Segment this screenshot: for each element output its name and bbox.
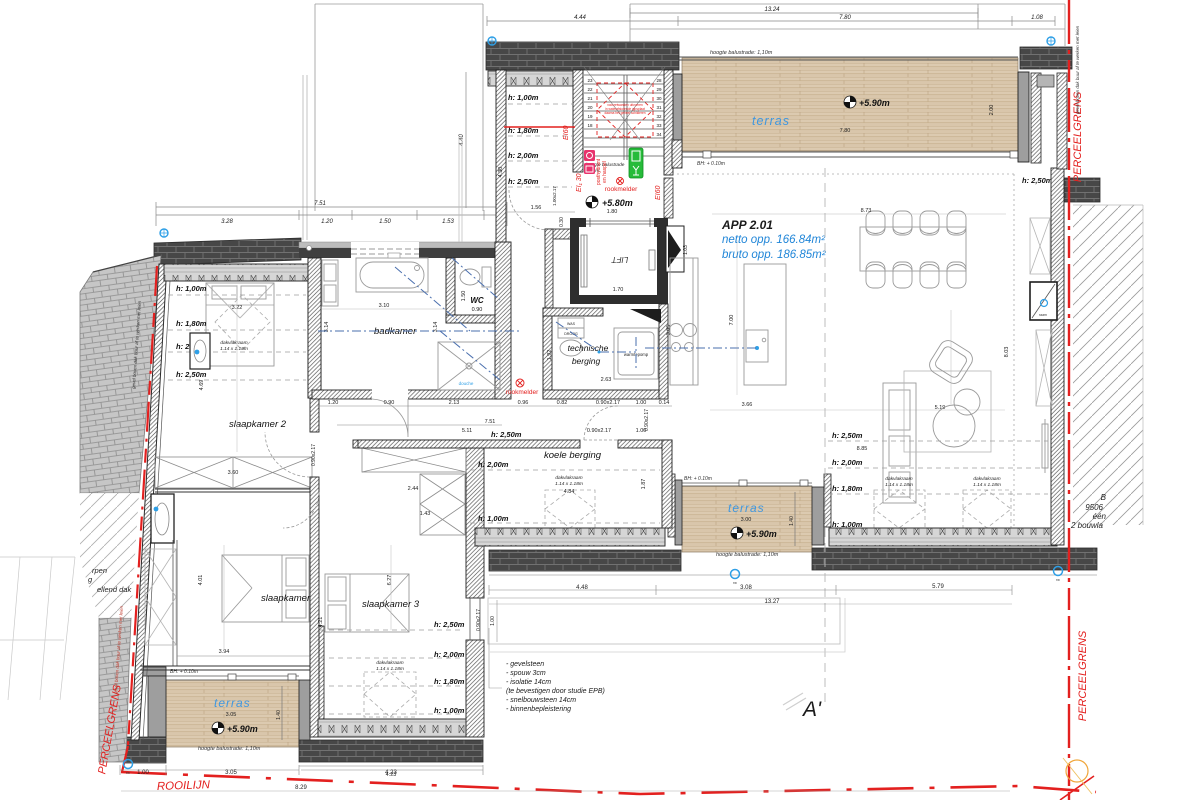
svg-text:rookmelder: rookmelder [506,389,539,396]
svg-text:3.00: 3.00 [741,517,752,523]
svg-text:dakvlakraam: dakvlakraam [220,340,247,346]
svg-text:+5.80m: +5.80m [602,198,633,208]
svg-text:h: 2,00m: h: 2,00m [832,458,863,467]
svg-text:h: 2,50m: h: 2,50m [832,431,863,440]
svg-text:0.90x2.17: 0.90x2.17 [596,400,620,406]
svg-text:1.14 x 1.18m: 1.14 x 1.18m [376,666,404,672]
svg-text:slaapkamer 2: slaapkamer 2 [229,419,287,430]
svg-text:0.90x2.17: 0.90x2.17 [476,609,482,631]
svg-text:1.14 x 1.18m: 1.14 x 1.18m [885,482,913,488]
svg-text:1.40: 1.40 [789,516,795,526]
svg-text:raam: raam [1039,313,1047,317]
svg-text:1.80: 1.80 [607,209,618,215]
svg-text:1.56: 1.56 [531,205,542,211]
svg-text:WAS: WAS [567,322,576,326]
svg-text:3.08: 3.08 [740,585,752,591]
svg-text:34: 34 [656,132,662,137]
svg-text:gevel boven dak buur af te wer: gevel boven dak buur af te werken met le… [1075,25,1080,114]
svg-text:+5.90m: +5.90m [859,98,890,108]
svg-text:4.48: 4.48 [576,585,588,591]
svg-text:terras: terras [752,114,790,128]
svg-text:33: 33 [656,123,662,128]
svg-text:30: 30 [656,96,662,101]
svg-text:3.05: 3.05 [226,712,237,718]
svg-text:6.27: 6.27 [387,575,393,586]
svg-text:0.14: 0.14 [659,400,670,406]
svg-text:h: 1,00m: h: 1,00m [176,284,207,293]
svg-text:4.34: 4.34 [564,489,575,495]
svg-text:2.44: 2.44 [408,486,419,492]
svg-text:8.03: 8.03 [1004,347,1010,358]
svg-text:h: 2,00m: h: 2,00m [478,460,509,469]
svg-text:1.03: 1.03 [683,245,689,255]
svg-text:4.01: 4.01 [198,575,204,586]
svg-text:0.90: 0.90 [384,400,395,406]
svg-text:- gevelsteen: - gevelsteen [506,661,544,668]
svg-text:rw: rw [1056,578,1060,582]
svg-text:rw: rw [126,771,130,775]
svg-text:8.85: 8.85 [857,446,868,452]
svg-text:- isolatie 14cm: - isolatie 14cm [506,679,551,686]
svg-text:EI₁ 30: EI₁ 30 [576,173,583,192]
svg-text:0.90: 0.90 [472,307,483,313]
svg-text:0.82: 0.82 [557,400,568,406]
svg-text:1.14 x 1.18m: 1.14 x 1.18m [220,346,248,352]
svg-text:BH: + 0.10m: BH: + 0.10m [684,476,712,482]
svg-text:2.00: 2.00 [989,105,995,116]
svg-text:2.13: 2.13 [449,400,460,406]
svg-text:0.30: 0.30 [559,217,565,227]
svg-text:1.00: 1.00 [137,770,149,776]
svg-text:hoogte balustrade: 1,10m: hoogte balustrade: 1,10m [716,552,779,558]
svg-text:7.51: 7.51 [314,201,326,207]
svg-text:- binnenbepleistering: - binnenbepleistering [506,706,571,713]
svg-text:h: 2,00m: h: 2,00m [508,151,539,160]
svg-text:(te bevestigen door studie EPB: (te bevestigen door studie EPB) [506,688,605,695]
svg-text:3.05: 3.05 [666,325,672,336]
svg-text:13.27: 13.27 [764,599,780,605]
svg-text:één: één [1093,512,1107,521]
svg-text:1.00: 1.00 [636,400,647,406]
svg-text:ROOILIJN: ROOILIJN [157,779,211,793]
svg-text:bruto opp. 186.85m²: bruto opp. 186.85m² [722,249,827,261]
svg-text:- spouw 3cm: - spouw 3cm [506,670,546,677]
svg-text:3.28: 3.28 [221,219,233,225]
svg-text:h: 2,50m: h: 2,50m [434,620,465,629]
svg-text:0.96: 0.96 [518,400,529,406]
svg-text:h: 2,50m: h: 2,50m [1022,176,1053,185]
svg-text:3.66: 3.66 [742,402,753,408]
svg-text:4.30: 4.30 [498,167,504,178]
svg-text:32: 32 [656,114,662,119]
svg-text:h: 1,80m: h: 1,80m [434,677,465,686]
svg-text:1.40: 1.40 [276,710,282,720]
svg-text:8.73: 8.73 [861,208,872,214]
svg-text:0.90x2.17: 0.90x2.17 [644,409,650,431]
svg-text:ellend dak: ellend dak [97,585,132,594]
svg-text:1.00: 1.00 [490,616,496,626]
svg-text:0.90x2.17: 0.90x2.17 [587,428,611,434]
svg-text:LIFT: LIFT [611,255,629,264]
svg-text:terras: terras [214,696,251,710]
svg-text:7.80: 7.80 [839,15,851,21]
svg-text:terras: terras [728,501,765,515]
svg-text:2.63: 2.63 [601,377,612,383]
svg-text:hoogte balustrade: 1,10m: hoogte balustrade: 1,10m [198,746,261,752]
svg-text:1.92: 1.92 [547,350,553,361]
svg-text:4.21: 4.21 [318,617,324,628]
svg-text:7.80: 7.80 [840,128,851,134]
svg-text:1.14 x 1.18m: 1.14 x 1.18m [555,481,583,487]
svg-text:1.08: 1.08 [1031,15,1043,21]
svg-text:3.60: 3.60 [228,470,239,476]
svg-text:EI60: EI60 [655,185,662,200]
svg-text:0.90x2.17: 0.90x2.17 [311,444,317,466]
svg-text:h: 1,80m: h: 1,80m [832,484,863,493]
svg-text:h: 1,80m: h: 1,80m [176,319,207,328]
svg-text:A': A' [801,698,822,721]
svg-text:19: 19 [587,114,593,119]
svg-text:4.44: 4.44 [574,15,586,21]
svg-text:23: 23 [587,78,593,83]
svg-text:8.29: 8.29 [295,785,307,791]
svg-text:4.69: 4.69 [199,380,205,391]
svg-text:7.51: 7.51 [485,419,496,425]
svg-text:9506: 9506 [1085,503,1103,512]
svg-text:rw: rw [733,581,737,585]
svg-text:1.20: 1.20 [321,219,333,225]
svg-text:1.53: 1.53 [442,219,454,225]
svg-text:+5.90m: +5.90m [227,724,258,734]
svg-text:5.79: 5.79 [932,584,944,590]
svg-text:APP 2.01: APP 2.01 [721,218,773,232]
svg-text:EI60: EI60 [563,125,570,140]
svg-text:h: 2,50m: h: 2,50m [508,177,539,186]
svg-text:B: B [1101,493,1107,502]
svg-text:dakvlakraam: dakvlakraam [376,660,403,666]
svg-text:1.43: 1.43 [420,511,431,517]
svg-text:douche: douche [459,381,474,386]
svg-text:daarna het geheel schilderen: daarna het geheel schilderen [604,111,645,115]
svg-text:18: 18 [587,123,593,128]
svg-text:dakvlakraam: dakvlakraam [885,476,912,482]
svg-text:5.11: 5.11 [462,428,472,434]
svg-text:20: 20 [587,105,593,110]
svg-text:rookmelder: rookmelder [605,186,638,193]
svg-text:4.23: 4.23 [385,770,397,776]
svg-text:BH: + 0.10m: BH: + 0.10m [697,161,725,167]
svg-text:WC: WC [470,296,484,305]
svg-text:netto opp. 166.84m²: netto opp. 166.84m² [722,234,826,246]
svg-text:31: 31 [656,105,662,110]
svg-text:koele berging: koele berging [544,450,602,461]
svg-text:dakvlakraam: dakvlakraam [973,476,1000,482]
svg-text:1.20: 1.20 [328,400,339,406]
svg-text:1.50: 1.50 [461,291,467,302]
svg-text:h: 1,00m: h: 1,00m [478,514,509,523]
svg-text:slaapkamer 1: slaapkamer 1 [261,593,318,604]
svg-text:1.50: 1.50 [379,219,391,225]
svg-text:dakvlakraam: dakvlakraam [555,475,582,481]
svg-text:22: 22 [587,87,593,92]
svg-text:21: 21 [587,96,593,101]
svg-text:rpen: rpen [92,566,107,575]
svg-text:3.10: 3.10 [379,303,390,309]
svg-text:29: 29 [656,87,662,92]
svg-text:7.00: 7.00 [729,315,735,326]
svg-text:PERCEELGRENS: PERCEELGRENS [1077,630,1089,721]
svg-text:1.87: 1.87 [641,479,647,490]
svg-text:+5.90m: +5.90m [746,529,777,539]
svg-text:h: 2,50m: h: 2,50m [176,370,207,379]
svg-text:3.05: 3.05 [225,770,237,776]
svg-text:1.00x2.17: 1.00x2.17 [552,186,557,206]
svg-text:28: 28 [656,78,662,83]
svg-text:berging: berging [572,356,601,366]
svg-text:h: 1,00m: h: 1,00m [434,706,465,715]
svg-text:h: 1,00m: h: 1,00m [508,93,539,102]
svg-text:en haspel: en haspel [602,161,608,183]
svg-text:1.70: 1.70 [613,287,624,293]
svg-text:- snelbouwsteen 14cm: - snelbouwsteen 14cm [506,697,576,704]
svg-text:13.24: 13.24 [764,7,780,13]
svg-text:2 bouwla: 2 bouwla [1070,521,1104,530]
svg-text:1.14 x 1.18m: 1.14 x 1.18m [973,482,1001,488]
svg-text:hoogte balustrade: 1,10m: hoogte balustrade: 1,10m [710,50,773,56]
svg-text:h: 2,50m: h: 2,50m [491,430,522,439]
svg-text:h: 2,00m: h: 2,00m [434,650,465,659]
